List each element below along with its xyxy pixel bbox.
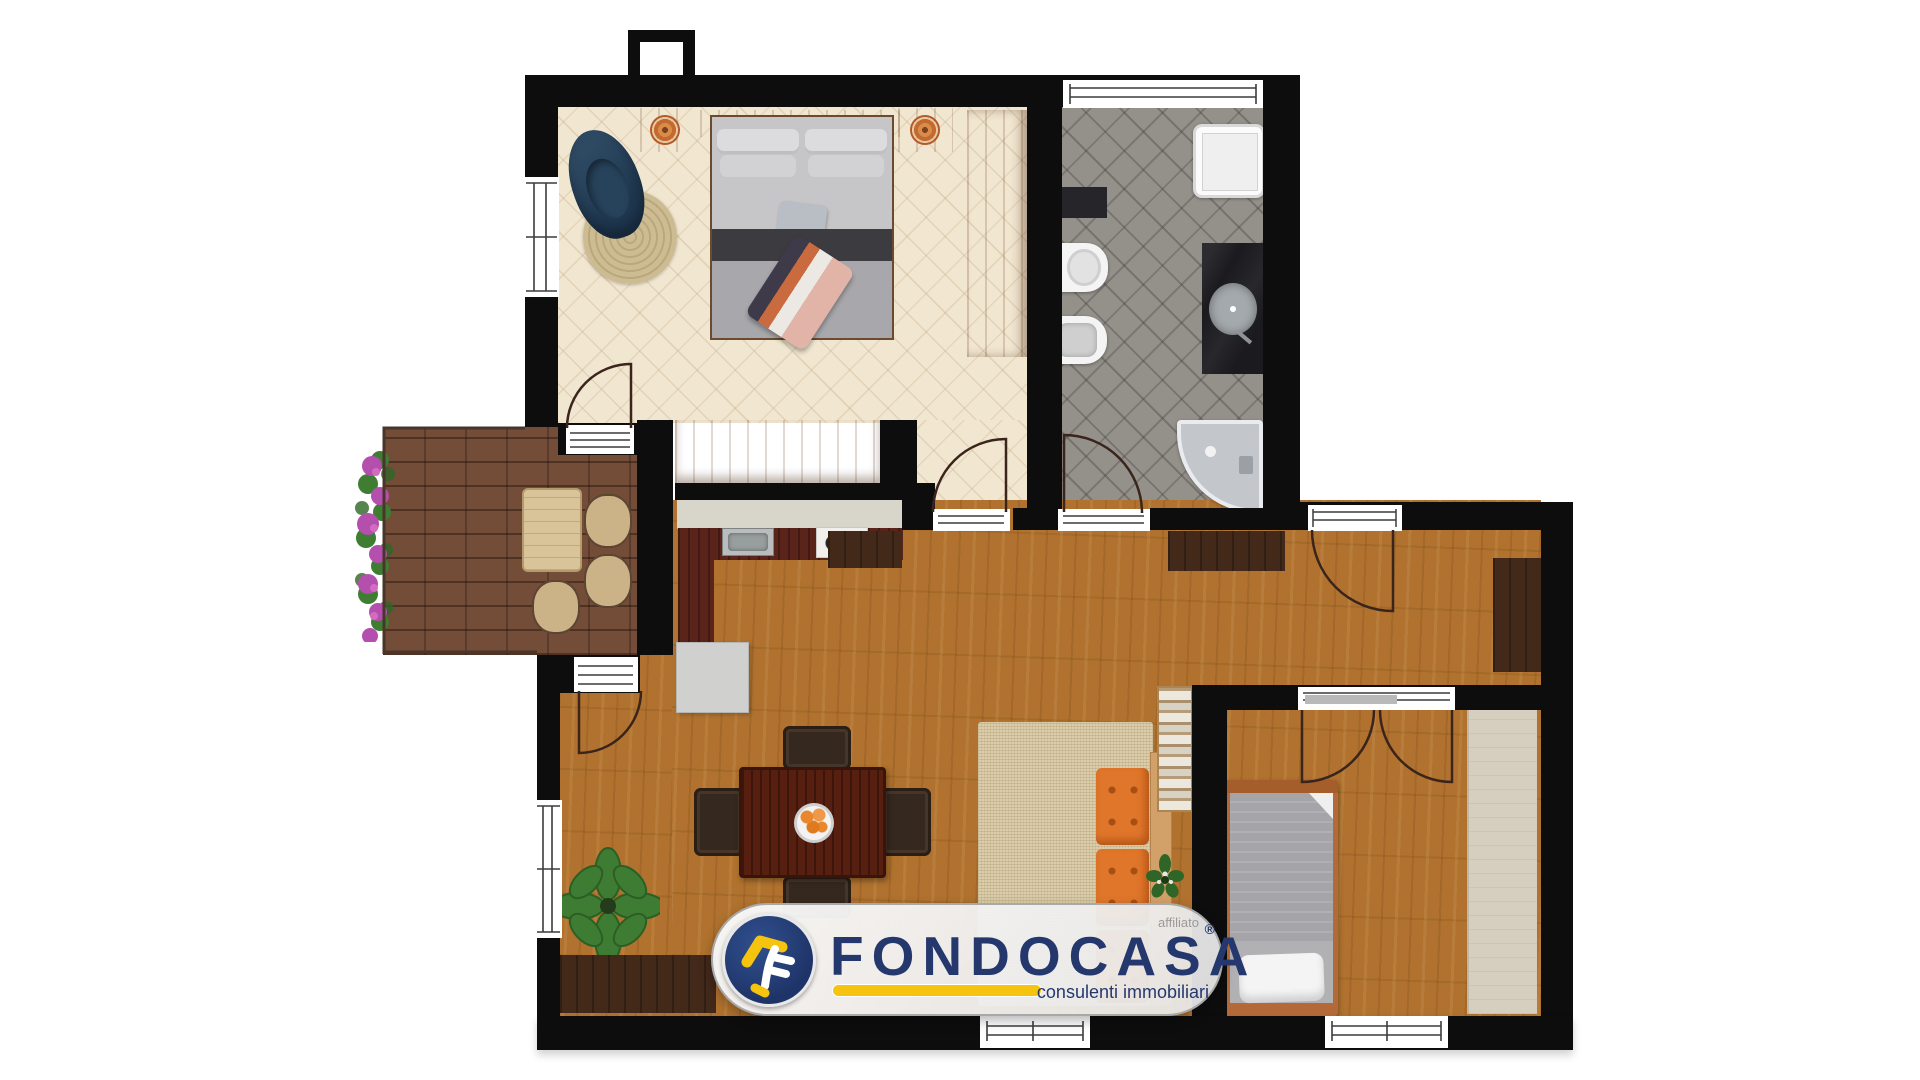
registered-mark: ® (1205, 921, 1215, 937)
window-bedroom2-bottom (1325, 1016, 1448, 1048)
door-bathroom (1058, 435, 1150, 531)
brand-tagline: consulenti immobiliari (1037, 982, 1209, 1003)
window-bathroom-top (1063, 80, 1263, 108)
french-window-top-right (1308, 505, 1402, 611)
fondocasa-logo-mark (722, 913, 816, 1007)
tagline-underline (832, 984, 1042, 997)
window-living-bottom (980, 1016, 1090, 1048)
chimney-inner (640, 42, 683, 75)
fondocasa-f-icon (725, 916, 813, 1004)
door-bedroom2-double (1298, 687, 1455, 782)
window-bedroom1-left (524, 177, 559, 297)
balcony-outline (384, 428, 537, 654)
window-living-left (535, 800, 562, 938)
door-bedroom1-hall (933, 439, 1010, 531)
door-balcony-living (574, 657, 641, 753)
brand-wordmark: FONDOCASA (830, 929, 1256, 984)
door-bedroom1-balcony (566, 364, 634, 454)
floor-plan-canvas: affiliato FONDOCASA ® consulenti immobil… (0, 0, 1920, 1080)
fondocasa-watermark: affiliato FONDOCASA ® consulenti immobil… (711, 903, 1223, 1016)
